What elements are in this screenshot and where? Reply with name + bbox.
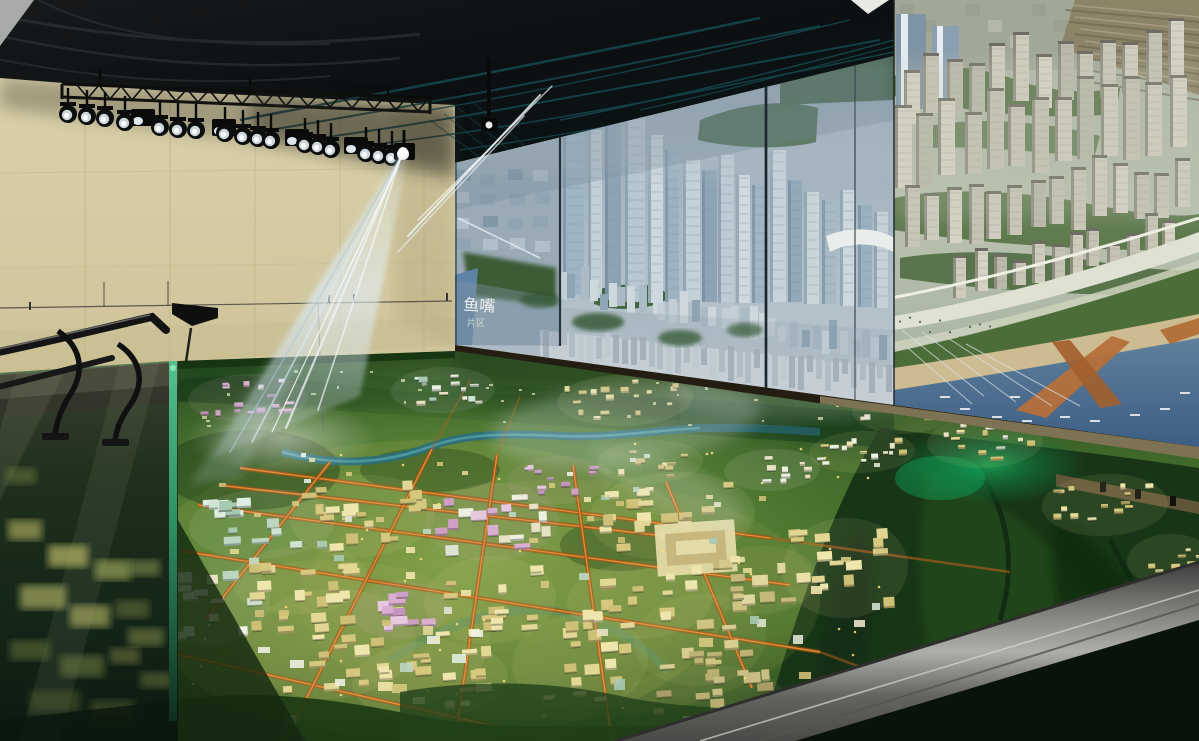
svg-text:片区: 片区: [467, 317, 485, 328]
svg-text:鱼嘴: 鱼嘴: [463, 296, 496, 316]
